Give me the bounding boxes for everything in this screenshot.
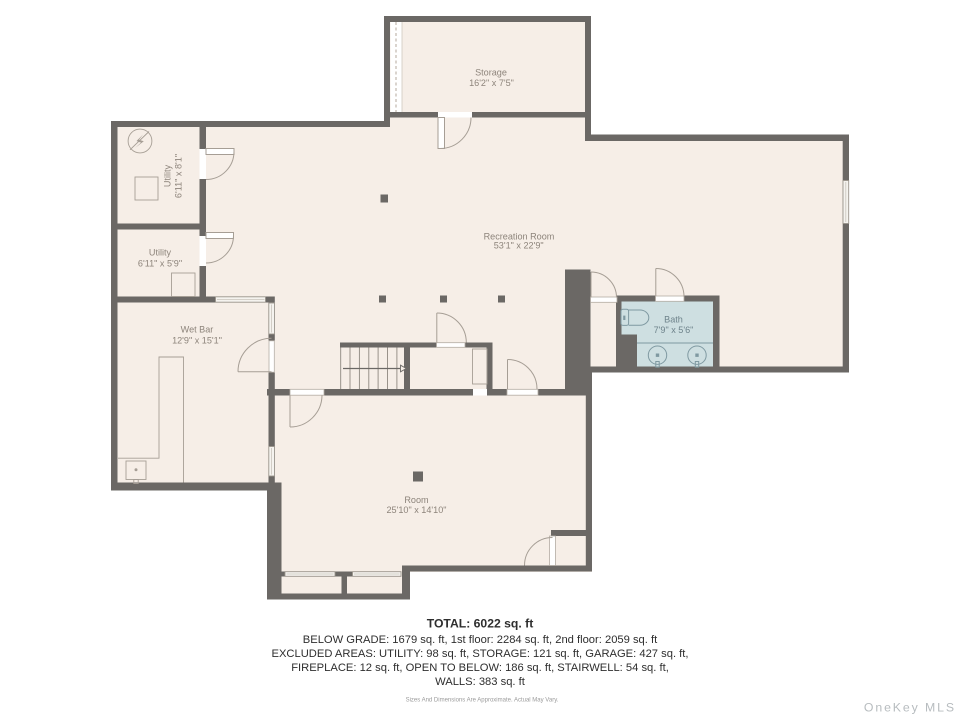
svg-text:Bath: Bath [664,315,683,325]
svg-text:WALLS: 383 sq. ft: WALLS: 383 sq. ft [435,676,526,688]
svg-text:53'1" x 22'9": 53'1" x 22'9" [494,241,544,251]
svg-text:EXCLUDED AREAS: UTILITY: 98 sq: EXCLUDED AREAS: UTILITY: 98 sq. ft, STOR… [272,648,689,660]
svg-text:FIREPLACE: 12 sq. ft, OPEN TO: FIREPLACE: 12 sq. ft, OPEN TO BELOW: 186… [291,662,669,674]
svg-text:Sizes And Dimensions Are Appro: Sizes And Dimensions Are Approximate. Ac… [406,698,559,704]
svg-text:Utility: Utility [163,164,173,187]
svg-text:Storage: Storage [475,68,507,78]
svg-text:6'11" x 5'9": 6'11" x 5'9" [138,259,182,269]
svg-text:Room: Room [404,495,428,505]
svg-text:Wet Bar: Wet Bar [181,325,214,335]
svg-text:6'11" x 8'1": 6'11" x 8'1" [174,154,184,198]
svg-text:BELOW GRADE: 1679 sq. ft, 1st: BELOW GRADE: 1679 sq. ft, 1st floor: 228… [303,634,658,646]
svg-text:Utility: Utility [149,248,172,258]
svg-text:OneKey MLS: OneKey MLS [864,701,956,715]
svg-text:16'2" x 7'5": 16'2" x 7'5" [469,78,514,88]
svg-text:25'10" x 14'10": 25'10" x 14'10" [387,505,447,515]
svg-text:12'9" x 15'1": 12'9" x 15'1" [172,336,222,346]
svg-text:TOTAL: 6022 sq. ft: TOTAL: 6022 sq. ft [427,617,534,631]
svg-text:7'9" x 5'6": 7'9" x 5'6" [654,325,694,335]
